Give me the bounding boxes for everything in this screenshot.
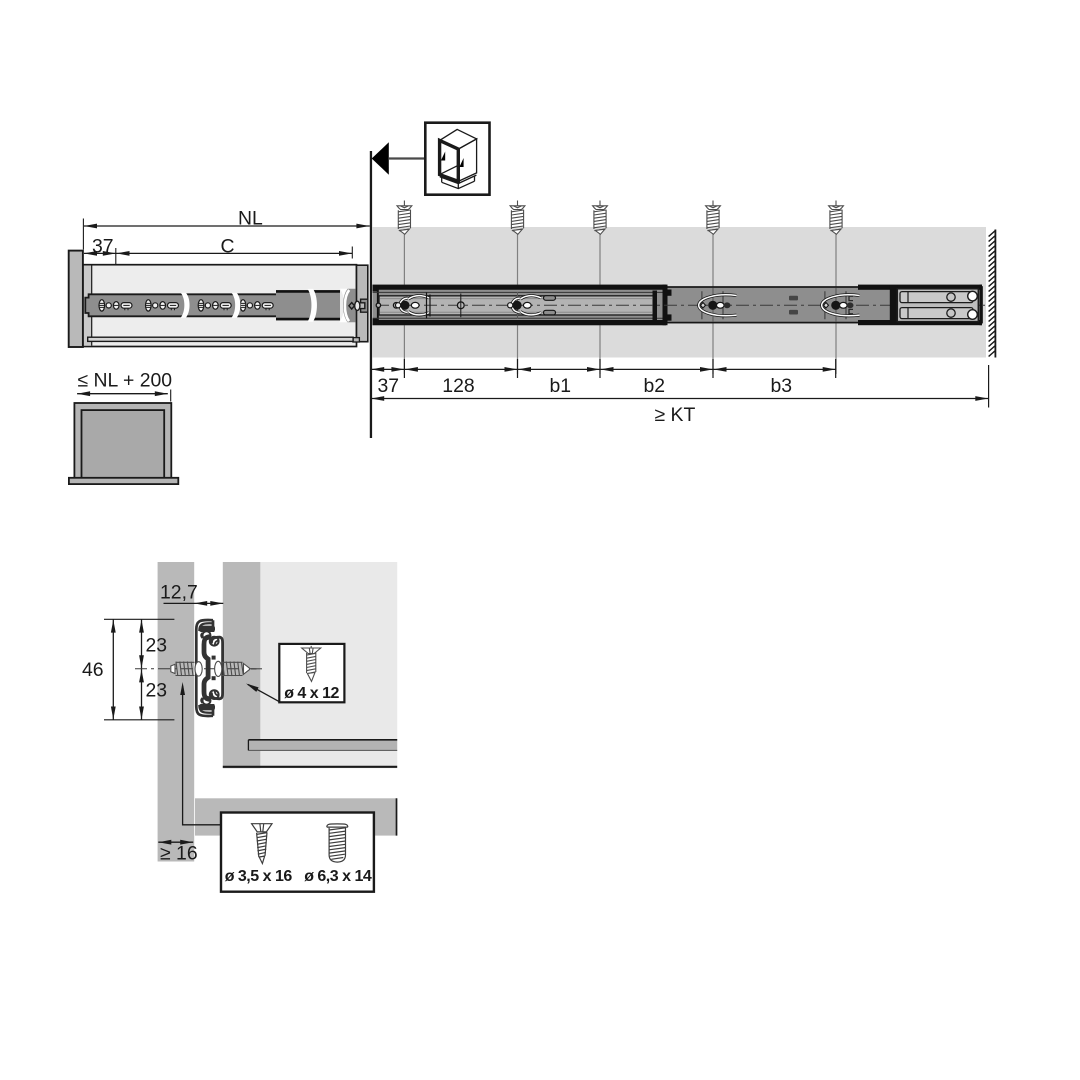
svg-text:NL: NL <box>238 208 263 230</box>
svg-text:b2: b2 <box>644 375 666 397</box>
svg-text:46: 46 <box>82 659 104 681</box>
svg-text:≤ NL + 200: ≤ NL + 200 <box>78 370 173 392</box>
svg-text:37: 37 <box>92 236 114 258</box>
svg-text:37: 37 <box>378 375 400 397</box>
svg-text:≥ KT: ≥ KT <box>655 404 696 426</box>
svg-text:ø 6,3 x 14: ø 6,3 x 14 <box>304 868 372 885</box>
svg-text:23: 23 <box>146 680 168 702</box>
svg-text:C: C <box>221 236 235 258</box>
svg-text:b1: b1 <box>550 375 572 397</box>
svg-text:12,7: 12,7 <box>160 581 198 603</box>
svg-text:23: 23 <box>146 635 168 657</box>
svg-text:128: 128 <box>442 375 474 397</box>
svg-text:ø 3,5 x 16: ø 3,5 x 16 <box>225 868 293 885</box>
svg-text:≥ 16: ≥ 16 <box>160 842 198 864</box>
svg-text:b3: b3 <box>771 375 793 397</box>
svg-text:ø 4 x 12: ø 4 x 12 <box>284 685 339 702</box>
